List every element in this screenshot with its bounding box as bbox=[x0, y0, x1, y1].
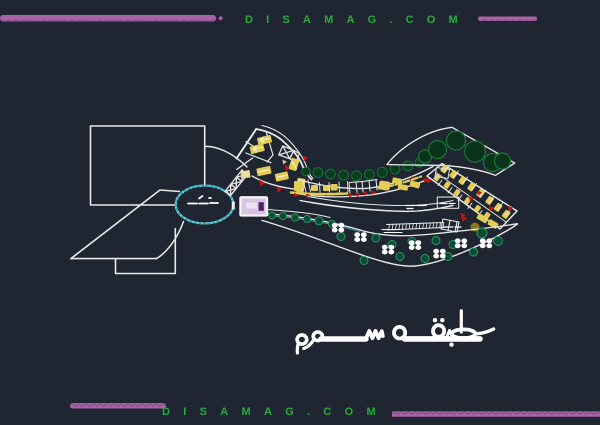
svg-text:DISAMAG.COM: DISAMAG.COM bbox=[245, 14, 471, 26]
svg-text:DISAMAG.COM: DISAMAG.COM bbox=[162, 406, 389, 418]
